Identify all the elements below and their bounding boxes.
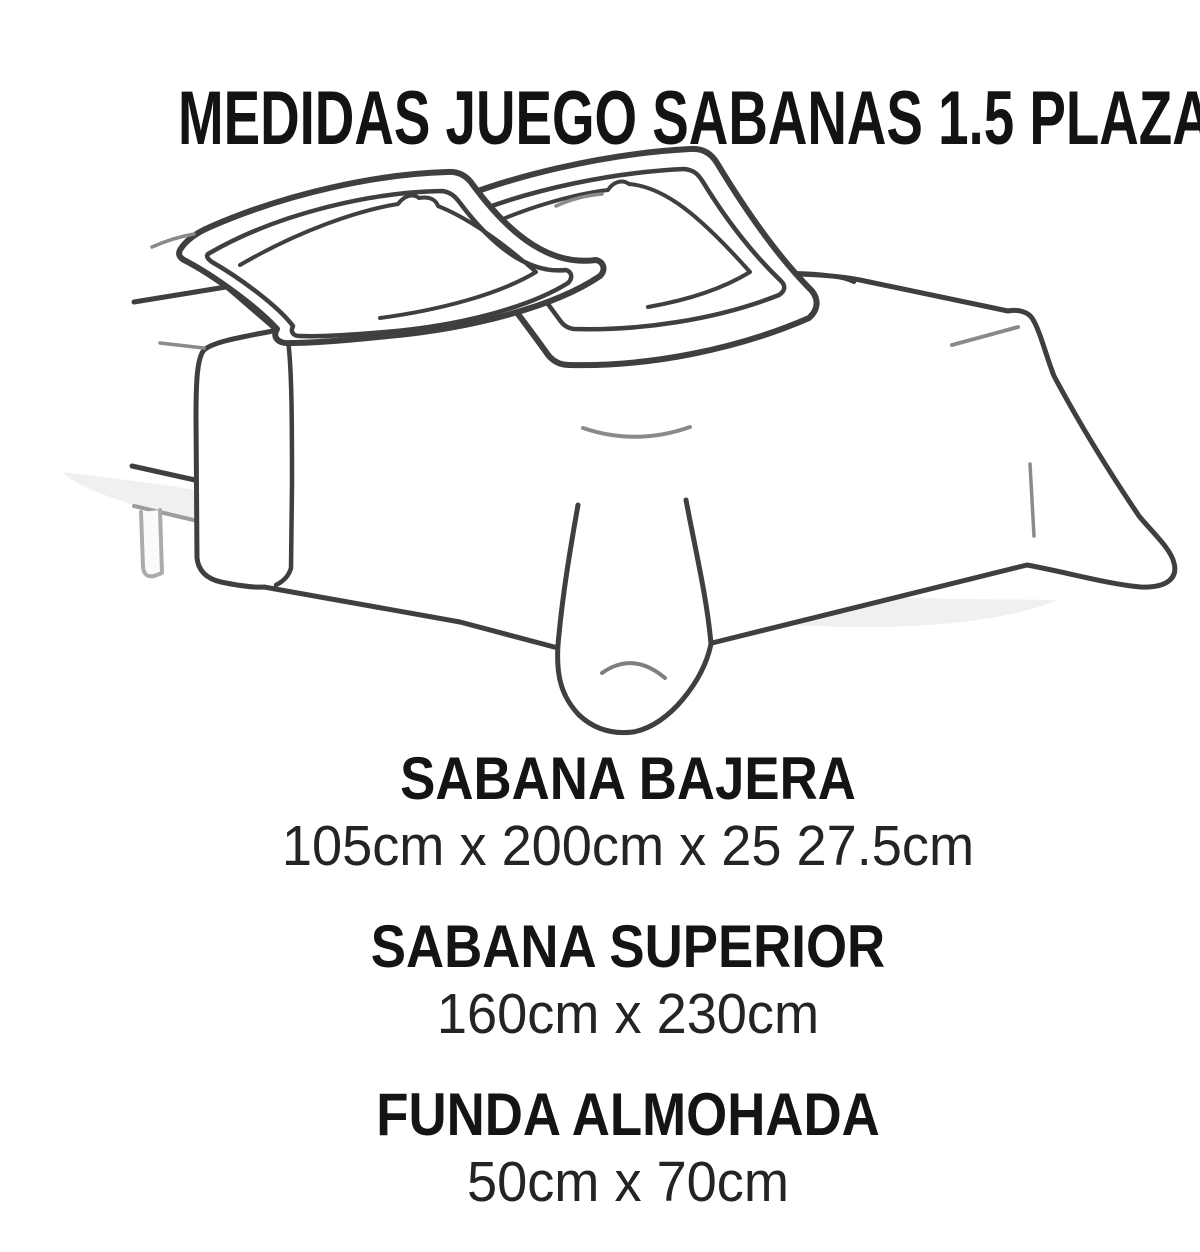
bed-leg: [141, 510, 162, 576]
sheet-tongue-fold: [558, 500, 711, 733]
measurement-list: SABANA BAJERA 105cm x 200cm x 25 27.5cm …: [28, 748, 1200, 1252]
spec-label: FUNDA ALMOHADA: [100, 1084, 1156, 1146]
spec-label: SABANA SUPERIOR: [100, 916, 1156, 978]
spec-funda-almohada: FUNDA ALMOHADA 50cm x 70cm: [28, 1084, 1200, 1212]
spec-sabana-superior: SABANA SUPERIOR 160cm x 230cm: [28, 916, 1200, 1044]
spec-measurement: 105cm x 200cm x 25 27.5cm: [58, 816, 1198, 876]
measurement-infographic: MEDIDAS JUEGO SABANAS 1.5 PLAZAS: [0, 0, 1200, 1200]
spec-measurement: 50cm x 70cm: [58, 1152, 1198, 1212]
spec-sabana-bajera: SABANA BAJERA 105cm x 200cm x 25 27.5cm: [28, 748, 1200, 876]
bed-illustration: [0, 130, 1200, 750]
spec-label: SABANA BAJERA: [100, 748, 1156, 810]
spec-measurement: 160cm x 230cm: [58, 984, 1198, 1044]
